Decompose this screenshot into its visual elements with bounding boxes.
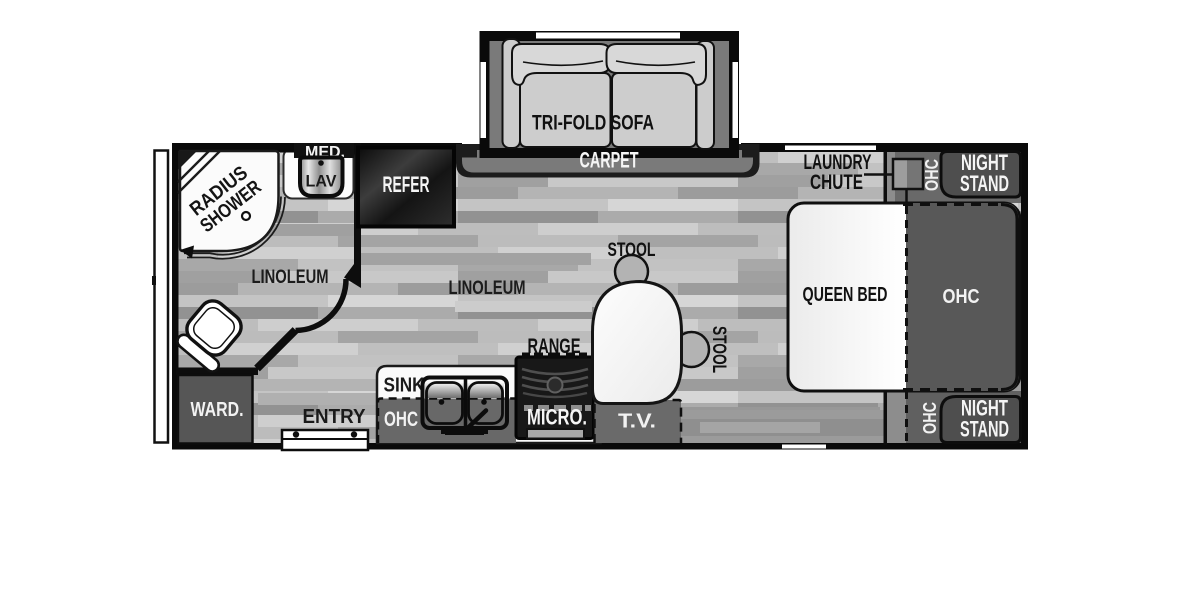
- svg-text:ENTRY: ENTRY: [303, 406, 367, 428]
- svg-text:STAND: STAND: [960, 171, 1009, 196]
- svg-text:OHC: OHC: [384, 408, 418, 431]
- svg-text:OHC: OHC: [920, 402, 940, 434]
- svg-text:TRI-FOLD SOFA: TRI-FOLD SOFA: [532, 112, 654, 135]
- svg-text:STOOL: STOOL: [608, 240, 656, 261]
- svg-text:OHC: OHC: [943, 286, 980, 308]
- svg-text:LINOLEUM: LINOLEUM: [252, 266, 329, 288]
- svg-text:CHUTE: CHUTE: [810, 171, 863, 194]
- svg-text:STOOL: STOOL: [708, 326, 729, 373]
- svg-text:SINK: SINK: [384, 375, 425, 397]
- svg-text:WARD.: WARD.: [191, 399, 244, 421]
- svg-text:MICRO.: MICRO.: [527, 405, 587, 430]
- svg-text:STAND: STAND: [960, 417, 1009, 442]
- svg-text:OHC: OHC: [922, 159, 942, 191]
- svg-text:LAV: LAV: [306, 172, 338, 191]
- svg-text:QUEEN BED: QUEEN BED: [803, 284, 888, 306]
- svg-text:CARPET: CARPET: [580, 148, 639, 173]
- svg-text:LINOLEUM: LINOLEUM: [449, 277, 526, 299]
- svg-text:REFER: REFER: [383, 172, 430, 197]
- svg-text:T.V.: T.V.: [618, 411, 656, 433]
